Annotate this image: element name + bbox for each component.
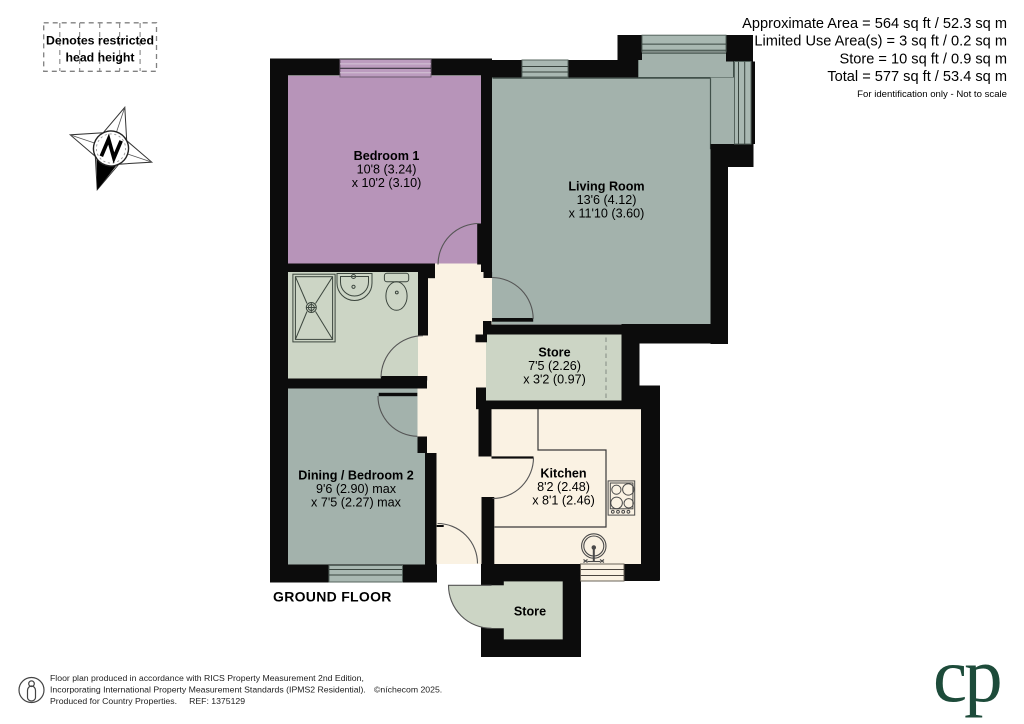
svg-text:8'2 (2.48): 8'2 (2.48) — [537, 480, 590, 494]
svg-text:Dining / Bedroom 2: Dining / Bedroom 2 — [298, 469, 413, 483]
svg-text:For identification only - Not: For identification only - Not to scale — [857, 89, 1007, 100]
svg-text:Produced for Country Propertie: Produced for Country Properties. REF: 13… — [50, 696, 245, 706]
svg-text:7'5 (2.26): 7'5 (2.26) — [528, 359, 581, 373]
svg-text:Incorporating International Pr: Incorporating International Property Mea… — [50, 685, 366, 695]
svg-text:x 3'2 (0.97): x 3'2 (0.97) — [523, 372, 586, 386]
svg-text:x 8'1 (2.46): x 8'1 (2.46) — [532, 493, 595, 507]
svg-text:Living Room: Living Room — [568, 180, 644, 194]
svg-text:Kitchen: Kitchen — [540, 467, 586, 481]
svg-text:Denotes restricted: Denotes restricted — [46, 34, 154, 48]
svg-text:Bedroom 1: Bedroom 1 — [354, 149, 420, 163]
svg-text:Store = 10 sq ft / 0.9 sq m: Store = 10 sq ft / 0.9 sq m — [839, 51, 1007, 67]
svg-text:9'6 (2.90) max: 9'6 (2.90) max — [316, 482, 397, 496]
svg-text:cp: cp — [933, 632, 1000, 718]
svg-text:Store: Store — [514, 605, 546, 619]
svg-text:x 10'2 (3.10): x 10'2 (3.10) — [352, 176, 422, 190]
svg-text:Total = 577 sq ft / 53.4 sq m: Total = 577 sq ft / 53.4 sq m — [827, 69, 1007, 85]
svg-text:Store: Store — [538, 346, 570, 360]
svg-text:GROUND FLOOR: GROUND FLOOR — [273, 589, 392, 605]
svg-text:10'8 (3.24): 10'8 (3.24) — [357, 162, 417, 176]
svg-text:head height: head height — [65, 51, 134, 65]
svg-text:x 11'10 (3.60): x 11'10 (3.60) — [569, 206, 645, 220]
svg-text:Approximate Area = 564 sq ft /: Approximate Area = 564 sq ft / 52.3 sq m — [742, 16, 1007, 32]
svg-text:Limited Use Area(s) = 3 sq ft: Limited Use Area(s) = 3 sq ft / 0.2 sq m — [754, 34, 1007, 50]
svg-text:©níchecom 2025.: ©níchecom 2025. — [374, 685, 442, 695]
svg-text:Floor plan produced in accorda: Floor plan produced in accordance with R… — [50, 673, 364, 683]
svg-text:x 7'5 (2.27) max: x 7'5 (2.27) max — [311, 495, 402, 509]
svg-text:13'6 (4.12): 13'6 (4.12) — [577, 193, 637, 207]
